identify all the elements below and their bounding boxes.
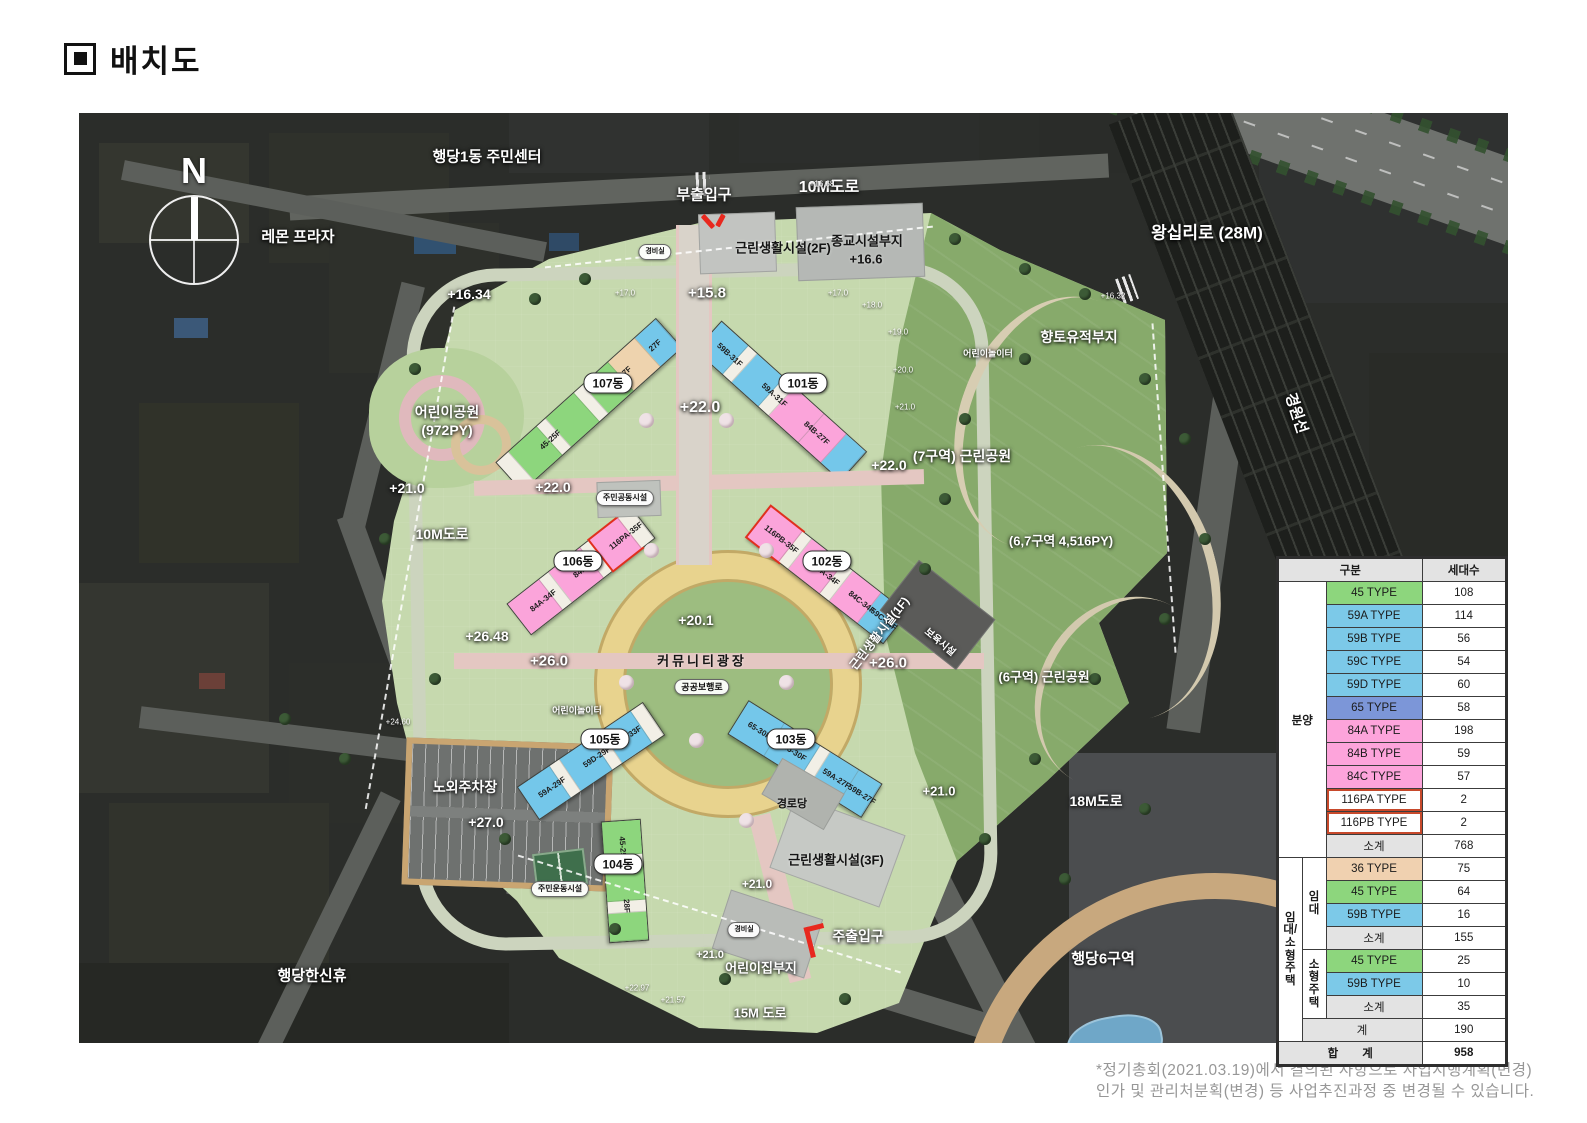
table-cell: 45 TYPE: [1326, 950, 1422, 973]
map-label: 행당한신휴: [277, 965, 346, 986]
map-decoration: [959, 413, 971, 425]
map-label: +20.0: [893, 366, 913, 375]
page-title-text: 배치도: [110, 36, 202, 81]
building-number-pill: 107동: [583, 373, 632, 394]
map-decoration: [499, 833, 511, 845]
map-label: +18.0: [862, 301, 882, 310]
map-decoration: [639, 413, 654, 428]
map-label: 어린이놀이터: [963, 347, 1013, 360]
building-number-pill: 104동: [593, 854, 642, 875]
map-label: 왕십리로 (28M): [1151, 219, 1263, 244]
map-decoration: [339, 753, 351, 765]
table-cell: 155: [1422, 927, 1506, 950]
table-cell: 36 TYPE: [1326, 858, 1422, 881]
table-cell: 임대/소형주택: [1278, 858, 1302, 1042]
map-decoration: [1019, 263, 1031, 275]
map-label: 어린이집부지: [725, 958, 797, 977]
table-cell: 소계: [1326, 927, 1422, 950]
map-decoration: [139, 403, 299, 563]
map-decoration: [759, 543, 774, 558]
table-cell: 세대수: [1422, 558, 1506, 582]
map-label: +26.0: [530, 653, 568, 670]
map-decoration: [1159, 613, 1171, 625]
map-decoration: [644, 543, 659, 558]
building-number-pill: 102동: [802, 551, 851, 572]
table-cell: 59: [1422, 743, 1506, 766]
table-cell: 59B TYPE: [1326, 973, 1422, 996]
table-cell: 190: [1422, 1019, 1506, 1042]
map-label: +21.0: [696, 949, 724, 961]
map-label: +16.34: [447, 286, 490, 302]
table-cell: 2: [1422, 789, 1506, 812]
map-label: +21.0: [923, 784, 956, 799]
table-cell: 계: [1302, 1019, 1422, 1042]
map-decoration: 계190: [1278, 1019, 1506, 1042]
table-cell: 114: [1422, 605, 1506, 628]
building-number-pill: 106동: [553, 551, 602, 572]
map-decoration: [979, 833, 991, 845]
table-cell: 59D TYPE: [1326, 674, 1422, 697]
unit-count-table-wrap: 구분세대수분양45 TYPE10859A TYPE11459B TYPE5659…: [1277, 557, 1507, 1066]
map-label: 행당1동 주민센터: [432, 146, 541, 167]
map-decoration: [151, 239, 237, 241]
map-decoration: [1199, 533, 1211, 545]
page: 배치도 45-25F36-27F27F59B-31F59A-31F84B-27F…: [0, 0, 1587, 1123]
footnote: *정기총회(2021.03.19)에서 결의된 사항으로 사업시행계획(변경) …: [1096, 1061, 1541, 1103]
map-decoration: [549, 233, 579, 251]
map-decoration: 소형주택45 TYPE25: [1278, 950, 1506, 973]
building-number-pill: 101동: [778, 373, 827, 394]
footnote-line2: 인가 및 관리처분획(변경) 등 사업추진과정 중 변경될 수 있습니다.: [1096, 1082, 1541, 1103]
map-label: 향토유적부지: [1040, 327, 1117, 347]
map-label: +22.97: [625, 984, 650, 993]
map-decoration: [739, 813, 754, 828]
map-decoration: 구분세대수분양45 TYPE10859A TYPE11459B TYPE5659…: [1278, 558, 1506, 1065]
map-label: 부출입구: [676, 184, 731, 205]
map-label: +21.0: [895, 403, 915, 412]
table-cell: 10: [1422, 973, 1506, 996]
table-cell: 65 TYPE: [1326, 697, 1422, 720]
map-label: 주민운동시설: [531, 881, 589, 897]
table-cell: 45 TYPE: [1326, 881, 1422, 904]
map-decoration: 구분세대수: [1278, 558, 1506, 582]
map-label: +15.8: [688, 285, 726, 302]
table-cell: 116PA TYPE: [1326, 789, 1422, 812]
map-decoration: [1059, 873, 1071, 885]
map-decoration: [579, 273, 591, 285]
map-decoration: [1079, 288, 1091, 300]
map-decoration: [949, 233, 961, 245]
map-label: +17.0: [828, 289, 848, 298]
map-label: 경로당: [777, 795, 807, 811]
map-label: +16.6: [850, 252, 883, 267]
building: 45-25F28F: [601, 819, 649, 943]
map-label: 노외주차장: [433, 777, 497, 797]
table-cell: 소계: [1326, 835, 1422, 858]
map-label: 경비실: [638, 244, 671, 260]
compass-north-label: N: [149, 153, 239, 189]
table-cell: 59C TYPE: [1326, 651, 1422, 674]
map-decoration: [409, 363, 421, 375]
map-label: +19.0: [888, 328, 908, 337]
map-decoration: [676, 225, 712, 565]
building-number-pill: 103동: [766, 729, 815, 750]
map-decoration: [79, 583, 269, 793]
table-cell: 75: [1422, 858, 1506, 881]
map-label: 근린생활시설(3F): [788, 850, 884, 869]
building-unit-label: 28F: [622, 899, 632, 913]
table-cell: 958: [1422, 1042, 1506, 1066]
map-label: +27.0: [468, 814, 503, 830]
map-label: +22.0: [871, 457, 906, 473]
table-cell: 합계: [1278, 1042, 1422, 1066]
map-decoration: [529, 293, 541, 305]
map-label: +21.0: [389, 480, 424, 496]
map-decoration: [779, 675, 794, 690]
map-decoration: [174, 318, 208, 338]
table-cell: 59B TYPE: [1326, 904, 1422, 927]
map-label: 어린이공원(972PY): [415, 402, 479, 438]
map-label: 주민공동시설: [596, 490, 654, 506]
building-number-pill: 105동: [580, 729, 629, 750]
map-decoration: [379, 533, 391, 545]
map-decoration: [719, 413, 734, 428]
map-decoration: [191, 197, 198, 240]
map-decoration: [1019, 353, 1031, 365]
table-cell: 57: [1422, 766, 1506, 789]
map-decoration: [74, 52, 87, 65]
map-decoration: [199, 673, 225, 689]
map-decoration: [1089, 673, 1101, 685]
unit-count-table: 구분세대수분양45 TYPE10859A TYPE11459B TYPE5659…: [1277, 557, 1507, 1066]
map-label: 10M도로: [416, 524, 469, 544]
table-cell: 56: [1422, 628, 1506, 651]
map-label: 종교시설부지: [831, 231, 903, 250]
map-decoration: [279, 713, 291, 725]
map-decoration: (972PY): [415, 422, 479, 438]
map-label: +17.0: [615, 289, 635, 298]
map-label: 근린생활시설(2F): [735, 238, 831, 257]
map-label: +20.1: [678, 612, 713, 628]
table-cell: 임대: [1302, 858, 1326, 950]
map-label: +16.32: [1101, 292, 1126, 301]
map-label: +21.57: [661, 996, 686, 1005]
map-label: 커뮤니티광장: [657, 651, 747, 670]
map-label: 어린이놀이터: [552, 704, 602, 717]
table-cell: 108: [1422, 582, 1506, 605]
table-cell: 소계: [1326, 996, 1422, 1019]
map-label: (6,7구역 4,516PY): [1009, 531, 1113, 550]
compass-dial: [149, 195, 239, 285]
table-cell: 구분: [1278, 558, 1422, 582]
map-label: 행당6구역: [1071, 948, 1135, 969]
map-label: 15M 도로: [734, 1003, 787, 1022]
page-title: 배치도: [64, 36, 202, 81]
map-decoration: [609, 923, 621, 935]
sub-entrance-marker: [700, 213, 728, 231]
table-cell: 2: [1422, 812, 1506, 835]
table-cell: 60: [1422, 674, 1506, 697]
map-label: 레몬 프라자: [261, 226, 334, 247]
table-cell: 768: [1422, 835, 1506, 858]
map-decoration: 어린이공원: [415, 402, 479, 422]
map-label: +26.48: [465, 628, 508, 644]
map-decoration: [939, 493, 951, 505]
map-label: +21.0: [742, 877, 772, 891]
map-decoration: 합계958: [1278, 1042, 1506, 1066]
table-cell: 45 TYPE: [1326, 582, 1422, 605]
table-cell: 59B TYPE: [1326, 628, 1422, 651]
map-decoration: [1139, 373, 1151, 385]
map-label: 18M도로: [1070, 791, 1123, 811]
map-label: +16.68: [810, 180, 835, 189]
table-cell: 116PB TYPE: [1326, 812, 1422, 835]
map-label: (6구역) 근린공원: [998, 667, 1089, 686]
map-decoration: [739, 113, 979, 163]
map-decoration: [919, 563, 931, 575]
map-label: 경비실: [727, 922, 760, 938]
map-decoration: [839, 993, 851, 1005]
table-cell: 84C TYPE: [1326, 766, 1422, 789]
map-label: (7구역) 근린공원: [913, 446, 1011, 466]
map-decoration: [429, 673, 441, 685]
table-cell: 58: [1422, 697, 1506, 720]
map-decoration: [1139, 803, 1151, 815]
square-bullet-icon: [64, 43, 96, 75]
table-cell: 분양: [1278, 582, 1326, 858]
map-decoration: [109, 803, 329, 973]
table-cell: 198: [1422, 720, 1506, 743]
map-decoration: [193, 240, 195, 283]
map-decoration: [619, 675, 634, 690]
map-label: +22.0: [535, 479, 570, 495]
table-cell: 25: [1422, 950, 1506, 973]
table-cell: 35: [1422, 996, 1506, 1019]
map-label: +22.0: [680, 399, 720, 417]
compass: N: [149, 153, 239, 285]
table-cell: 소형주택: [1302, 950, 1326, 1019]
map-label: +26.0: [869, 655, 907, 672]
table-cell: 84B TYPE: [1326, 743, 1422, 766]
table-cell: 64: [1422, 881, 1506, 904]
map-decoration: [1029, 753, 1041, 765]
map-decoration: 분양45 TYPE108: [1278, 582, 1506, 605]
table-cell: 54: [1422, 651, 1506, 674]
map-decoration: [689, 733, 704, 748]
map-decoration: 임대/소형주택임대36 TYPE75: [1278, 858, 1506, 881]
table-cell: 16: [1422, 904, 1506, 927]
map-label: 주출입구: [832, 926, 884, 946]
map-decoration: [1179, 433, 1191, 445]
map-label: +24.60: [386, 718, 411, 727]
table-cell: 59A TYPE: [1326, 605, 1422, 628]
table-cell: 84A TYPE: [1326, 720, 1422, 743]
map-label: 공공보행로: [674, 679, 729, 695]
